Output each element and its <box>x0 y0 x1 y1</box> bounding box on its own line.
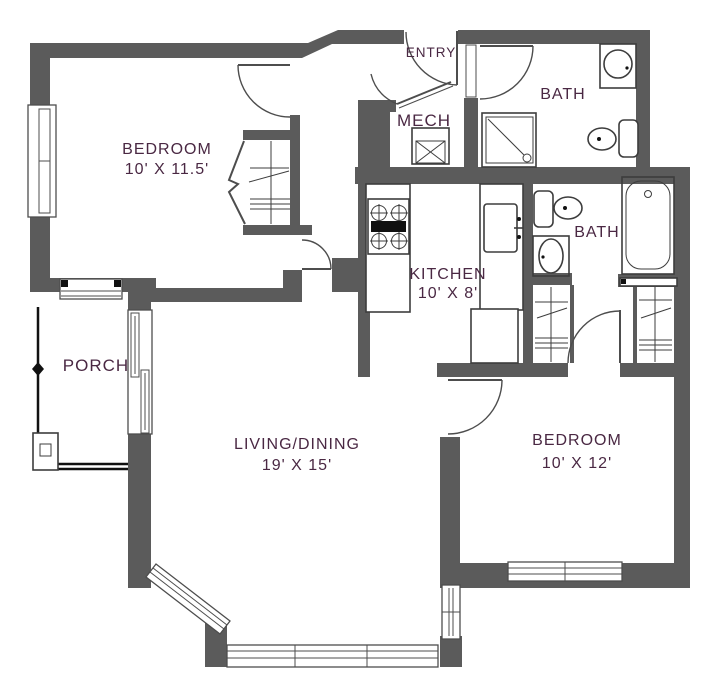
porch-right-wall-bottom <box>128 432 151 588</box>
refrigerator-icon <box>471 309 518 363</box>
porch-right-wall-top <box>128 292 151 312</box>
window-icon-living-right <box>442 585 460 639</box>
door-swing-icon-bedroom2 <box>448 380 502 434</box>
bay-post-right <box>440 636 462 667</box>
living-top-wall <box>128 288 302 302</box>
left-wall-upper <box>30 43 50 107</box>
kitchen-right-wall <box>523 167 533 377</box>
floor-plan-canvas: BEDROOM 10' X 11.5' ENTRY BATH MECH KITC… <box>0 0 717 697</box>
closet-rod-icon-hall-right <box>639 287 672 362</box>
mech-label: MECH <box>397 111 451 130</box>
kitchen-dims: 10' X 8' <box>418 285 478 302</box>
door-swing-icon-bedroom1 <box>238 65 290 117</box>
shower-icon-bath1 <box>482 113 536 167</box>
living-dims: 19' X 15' <box>262 457 332 474</box>
bedroom1-right-wall-stub <box>290 115 300 130</box>
door-swing-icon-corridor <box>302 240 331 269</box>
bath1-label: BATH <box>540 86 585 103</box>
bedroom1-label: BEDROOM <box>122 141 212 158</box>
closet-rod-icon-hall-left <box>535 287 568 362</box>
bathtub-icon-bath2 <box>622 177 674 274</box>
bedroom2-top-wall-left <box>437 363 568 377</box>
entry-label: ENTRY <box>406 45 457 60</box>
kitchen-counter-left <box>366 184 410 312</box>
sink-icon-bath1 <box>600 44 636 88</box>
hall-closet-divider-left <box>570 285 574 363</box>
water-heater-icon <box>412 128 449 164</box>
bedroom2-dims: 10' X 12' <box>542 455 612 472</box>
closet1-right-wall <box>290 130 300 235</box>
porch-label: PORCH <box>63 356 129 375</box>
porch-railing-icon <box>32 307 128 470</box>
door-swing-icon-bath2-hall <box>568 310 620 363</box>
bedroom1-dims: 10' X 11.5' <box>125 161 209 178</box>
closet-rod-icon-bedroom1 <box>229 141 290 224</box>
bath2-bottom-wall-left <box>523 273 572 285</box>
floor-plan: BEDROOM 10' X 11.5' ENTRY BATH MECH KITC… <box>0 0 717 697</box>
sliding-door-icon-porch <box>128 310 152 434</box>
towel-bar-icon-bath2 <box>620 278 677 286</box>
right-outer-wall <box>674 167 690 588</box>
hall-closet-divider-right <box>633 287 637 363</box>
top-wall-left <box>30 30 404 58</box>
top-wall-right <box>458 30 650 44</box>
window-icon-bedroom1-left <box>28 105 56 217</box>
closet1-top-stub <box>243 130 300 140</box>
living-top-wall-step <box>283 270 302 288</box>
sink-icon-bath2 <box>533 236 569 276</box>
toilet-icon-bath2 <box>534 191 582 227</box>
window-icon-bedroom1-porch <box>60 279 122 299</box>
toilet-icon-bath1 <box>588 120 638 157</box>
living-label: LIVING/DINING <box>234 436 360 453</box>
bedroom2-label: BEDROOM <box>532 432 622 449</box>
window-icon-bay-bottom <box>227 645 438 667</box>
window-icon-bedroom2-bottom <box>508 562 622 581</box>
kitchen-label: KITCHEN <box>409 266 486 283</box>
window-icon-bay-diagonal <box>146 564 230 634</box>
door-swing-icon-bath1 <box>466 45 533 99</box>
closet1-bottom-stub <box>243 225 312 235</box>
bedroom2-left-wall <box>440 437 460 563</box>
bath2-label: BATH <box>574 224 619 241</box>
